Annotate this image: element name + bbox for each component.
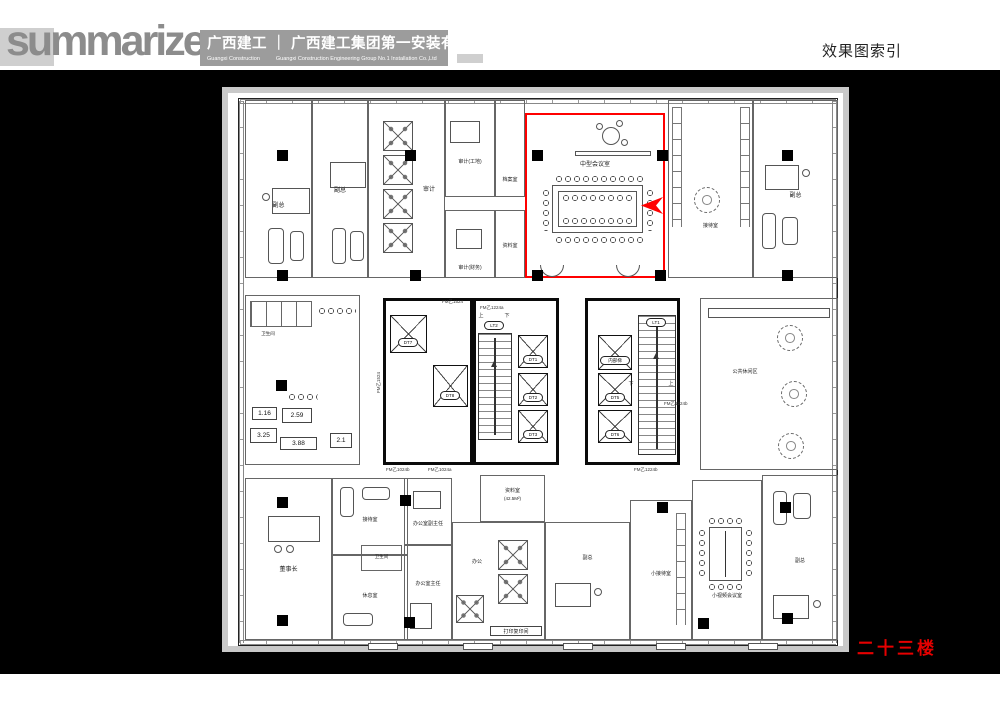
value-box: 3.25 [250,428,277,443]
room-label: 档案室 [495,177,525,183]
door-code: FM乙1524 [376,372,382,393]
room-label: 审计(财务) [445,265,495,271]
column [404,617,415,628]
room-label: 董事长 [245,567,332,575]
desk [555,583,591,607]
workstation-cluster [498,540,528,570]
desk [456,229,482,249]
window-wall-bottom [240,640,836,645]
toilet-stalls [250,301,312,327]
chair [616,120,623,127]
chair-row [562,217,634,225]
chair-row [555,175,643,183]
round-table [602,127,620,145]
chair-column [740,107,750,227]
room-label: 接待室 [332,517,408,523]
chair [274,545,282,553]
room-vice-gm-4 [545,522,630,640]
workstation-cluster [383,223,413,253]
door-code: FM乙1024a [428,467,452,473]
column [277,615,288,626]
room-label: 公共休闲区 [700,369,790,375]
tree-icon [777,325,803,351]
column [655,270,666,281]
room-leisure [700,298,838,470]
column [657,502,668,513]
up-label: 上 [476,313,486,319]
room-label: 副总 [753,193,838,201]
value-box: 2.1 [330,433,352,448]
counter [708,308,830,318]
room-label: 卫生间 [248,331,288,337]
workstation-cluster [498,574,528,604]
desk [268,516,320,542]
sofa [793,493,811,519]
room-label: 副总 [762,558,838,564]
workstation-cluster [383,189,413,219]
chair [596,123,603,130]
sofa [782,217,798,245]
chair [594,588,602,596]
printer-label: 打印复印间 [490,626,542,636]
column [532,270,543,281]
sinks [288,393,318,401]
floor-label: 二十三楼 [857,634,937,659]
workstation-cluster [383,121,413,151]
chair [262,193,270,201]
stair-label: LT1 [646,318,666,327]
room-label: 审计(工地) [445,159,495,165]
room-label: 办公室主任 [404,581,452,587]
logo-text: summarize [6,20,204,63]
elevator-label: DT7 [398,338,418,347]
chair [621,139,628,146]
chair [813,600,821,608]
column [405,150,416,161]
room-office-deputy-director [404,478,452,545]
room-label: 卫生间 [361,554,402,560]
room-label: 接待室 [668,223,753,229]
elevator-label: DT2 [523,393,543,402]
elevator-label: DT1 [523,355,543,364]
chair-row [745,529,753,579]
room-chairman [245,478,332,640]
sofa [343,613,373,626]
column-base [748,643,778,650]
chair-row [708,517,742,525]
sofa [340,487,354,517]
room-label: 副总 [312,188,368,196]
sofa [362,487,390,500]
value-box: 3.88 [280,437,317,450]
stair-rail [656,321,658,449]
elevator-label: DT3 [523,430,543,439]
sofa [290,231,304,261]
room-label: 休息室 [332,593,408,599]
page-title: 效果图索引 [822,40,902,61]
room-label: 资料室 [495,243,525,249]
column [780,502,791,513]
desk [413,491,441,509]
chair-row [698,529,706,579]
desk [450,121,480,143]
column [277,150,288,161]
elevator-dt7 [390,315,427,353]
company-en-full: Guangxi Construction Engineering Group N… [276,56,437,62]
company-name-en: Guangxi Construction Guangxi Constructio… [207,56,441,62]
chair-row [562,194,634,202]
sofa [350,231,364,261]
tree-icon [778,433,804,459]
room-area: (42.5M²) [480,496,545,502]
chair-row [708,583,742,591]
elevator-label: DT5 [605,393,625,402]
column-base [563,643,593,650]
down-label: 下 [502,313,512,319]
column [400,495,411,506]
column-base [656,643,686,650]
company-name-cn: 广西建工 ｜ 广西建工集团第一安装有限公司 [207,32,441,53]
value-box: 1.16 [252,407,277,420]
down-label: 下 [626,381,636,387]
column-base [368,643,398,650]
value-box: 2.59 [282,408,312,423]
chair [286,545,294,553]
sofa [332,228,346,264]
column [698,618,709,629]
column [277,270,288,281]
tree-icon [694,187,720,213]
door-code: FM乙1524 [442,299,463,305]
column-base [463,643,493,650]
elevator-label: DT6 [605,430,625,439]
desk [330,162,366,188]
door-code: FM乙1224b [634,467,658,473]
room-label: 审计 [414,187,444,195]
door-code: FM乙1224a [480,305,504,311]
column [782,270,793,281]
room-label: 副总 [245,203,312,211]
room-label: 办公室副主任 [404,521,452,527]
room-label: 副总 [545,555,630,561]
chair [802,169,810,177]
stair-arrow-icon [653,353,659,359]
room-label: 小视频会议室 [692,593,762,599]
table-centerline [725,531,726,577]
chair-row [542,189,550,231]
window-wall-left [239,101,244,643]
desk [765,165,799,190]
highlight-arrow-icon [641,197,663,214]
chair-column [676,513,686,625]
sideboard [575,151,651,156]
company-en-short: Guangxi Construction [207,56,260,62]
highlight-room-label: 中型会议室 [525,162,665,170]
workstation-cluster [456,595,484,623]
chair-row [555,236,643,244]
elevator-label: DT8 [440,391,460,400]
stair-rail [494,338,496,435]
column [410,270,421,281]
room-label: 小接待室 [630,571,692,577]
column [782,613,793,624]
stair-label: LT2 [484,321,504,330]
room-label: 资料室 [480,488,545,494]
toilet-fixtures [318,307,356,315]
column [532,150,543,161]
sofa [268,228,284,264]
column [782,150,793,161]
floorplan-sheet: 副总 副总 审计 审计(工地) 审计(财务) 档案室 资料室 中型会议室 接待室… [228,93,843,646]
column [276,380,287,391]
up-label: 上 [666,381,676,387]
room-audit-site [445,100,495,197]
door-code: FM乙1224b [664,401,688,407]
company-banner: 广西建工 ｜ 广西建工集团第一安装有限公司 Guangxi Constructi… [200,30,448,66]
chair-column [672,107,682,227]
column [657,150,668,161]
elevator-label: 内部梯 [600,356,630,365]
stair-arrow-icon [491,361,497,367]
elevator-dt8 [433,365,468,407]
column [277,497,288,508]
door-code: FM乙1024b [386,467,410,473]
header-accent [457,54,483,63]
room-label: 办公 [462,559,492,565]
tree-icon [781,381,807,407]
sofa [762,213,776,249]
